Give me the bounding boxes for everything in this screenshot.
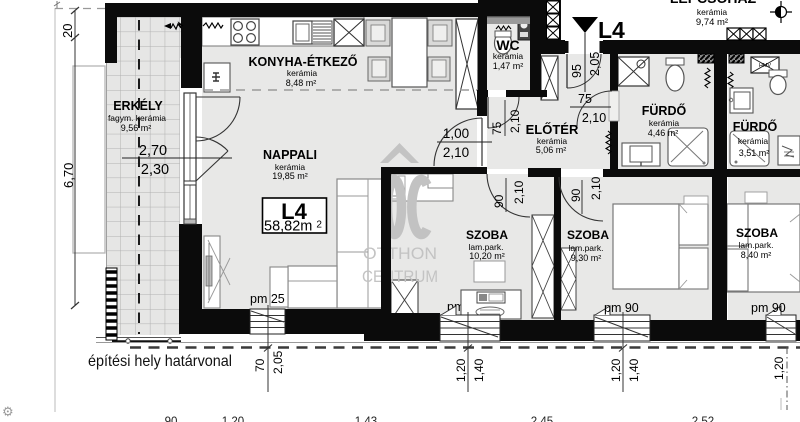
svg-text:2,10: 2,10 [512,180,526,204]
svg-text:fagym. kerámia: fagym. kerámia [108,113,166,123]
svg-text:1,20: 1,20 [454,358,468,382]
svg-text:9,74 m²: 9,74 m² [696,17,728,28]
svg-text:⚙: ⚙ [2,404,14,419]
svg-text:FÜRDŐ: FÜRDŐ [642,103,687,118]
svg-text:lam.park.: lam.park. [569,243,604,253]
svg-text:L4: L4 [598,17,625,43]
svg-text:kerámia: kerámia [287,68,318,78]
svg-text:2,10: 2,10 [508,109,522,133]
svg-text:8,40 m²: 8,40 m² [741,250,772,260]
svg-text:1,20: 1,20 [772,356,786,380]
svg-text:ERKÉLY: ERKÉLY [113,98,163,113]
svg-text:SZOBA: SZOBA [466,228,508,242]
svg-text:2,05: 2,05 [588,52,602,76]
svg-text:FÜRDŐ: FÜRDŐ [733,119,778,134]
svg-text:2,10: 2,10 [582,111,606,125]
svg-text:2,70: 2,70 [139,143,167,159]
svg-text:1,43: 1,43 [355,416,377,422]
svg-text:58,82m 2: 58,82m 2 [264,219,322,235]
svg-text:5,06 m²: 5,06 m² [536,145,567,155]
svg-text:1,20: 1,20 [609,358,623,382]
svg-text:90: 90 [569,188,583,202]
svg-text:lam.park.: lam.park. [739,240,774,250]
svg-text:1,40: 1,40 [627,358,641,382]
svg-text:építési hely határvonal: építési hely határvonal [88,353,232,370]
svg-text:70: 70 [253,358,267,372]
svg-text:kerámia: kerámia [738,136,769,146]
svg-text:4,46 m²: 4,46 m² [648,128,679,138]
svg-text:75: 75 [578,92,592,106]
svg-text:kerámia: kerámia [493,51,524,61]
svg-text:OTTHON: OTTHON [363,245,437,263]
svg-text:2,45: 2,45 [531,416,553,422]
svg-text:2,10: 2,10 [589,176,603,200]
svg-text:19,85 m²: 19,85 m² [272,171,308,181]
svg-text:20: 20 [60,24,75,38]
svg-text:HMV: HMV [759,63,772,69]
svg-text:1,47 m²: 1,47 m² [493,61,524,71]
svg-text:kerámia: kerámia [649,118,680,128]
svg-text:2,10: 2,10 [443,145,469,160]
svg-text:10,20 m²: 10,20 m² [469,251,505,261]
svg-text:3,51 m²: 3,51 m² [739,148,770,158]
svg-text:kerámia: kerámia [697,7,728,17]
svg-text:LÉPCSŐHÁZ: LÉPCSŐHÁZ [670,0,757,6]
svg-text:pm 90: pm 90 [751,301,786,315]
svg-text:NAPPALI: NAPPALI [263,148,317,162]
svg-text:ELŐTÉR: ELŐTÉR [526,122,579,137]
svg-text:1,20: 1,20 [222,416,244,422]
svg-text:95: 95 [570,64,584,78]
svg-text:2,52: 2,52 [692,416,714,422]
svg-text:1,40: 1,40 [472,358,486,382]
svg-text:6,70: 6,70 [61,163,76,188]
svg-text:SZOBA: SZOBA [736,226,778,240]
svg-text:1,00: 1,00 [443,126,469,141]
svg-text:pm 25: pm 25 [250,292,285,306]
svg-text:CENTRUM: CENTRUM [362,268,438,286]
svg-text:90: 90 [492,194,506,208]
svg-text:9,30 m²: 9,30 m² [571,253,602,263]
svg-text:2,05: 2,05 [271,350,285,374]
svg-text:2,30: 2,30 [141,162,169,178]
svg-text:75: 75 [490,121,504,135]
svg-text:pm 90: pm 90 [604,301,639,315]
svg-text:SZOBA: SZOBA [567,228,609,242]
svg-text:90: 90 [165,416,178,422]
svg-text:8,48 m²: 8,48 m² [286,78,317,88]
svg-text:KONYHA-ÉTKEZŐ: KONYHA-ÉTKEZŐ [248,54,357,69]
svg-text:9,56 m²: 9,56 m² [121,123,152,133]
